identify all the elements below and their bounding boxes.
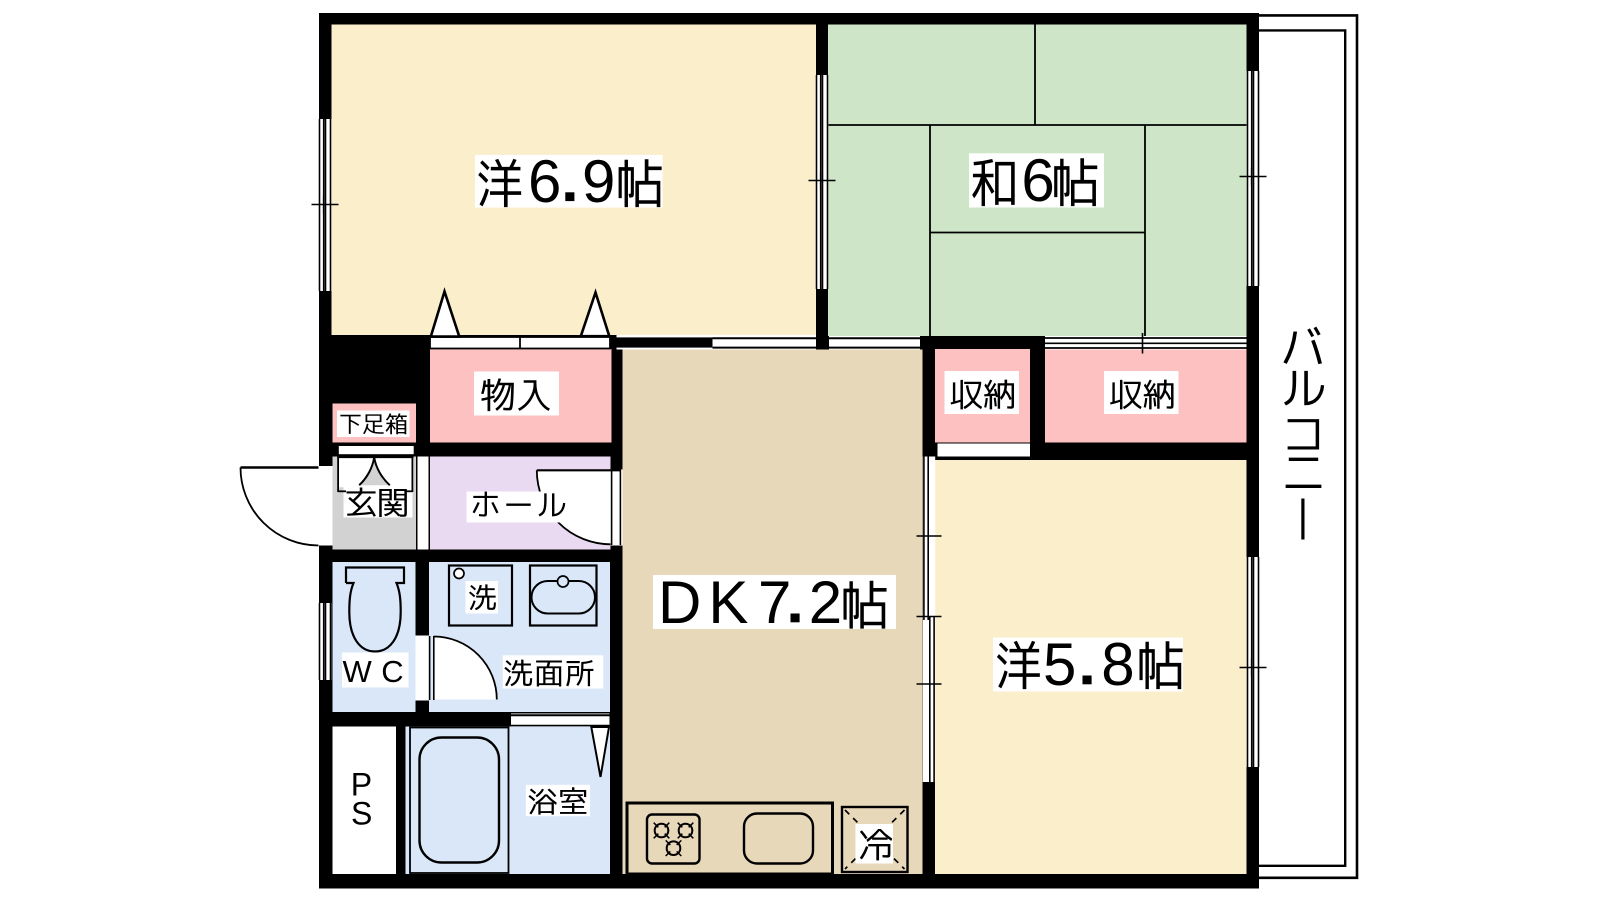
svg-text:S: S — [351, 796, 372, 832]
svg-text:WC: WC — [343, 654, 414, 689]
svg-text:DK: DK — [658, 569, 755, 636]
svg-text:6: 6 — [528, 148, 561, 215]
svg-text:5: 5 — [1043, 631, 1076, 698]
svg-text:2: 2 — [809, 569, 842, 636]
svg-text:9: 9 — [582, 148, 615, 215]
svg-text:8: 8 — [1101, 631, 1134, 698]
svg-text:7: 7 — [758, 569, 791, 636]
svg-text:6: 6 — [1021, 147, 1054, 214]
